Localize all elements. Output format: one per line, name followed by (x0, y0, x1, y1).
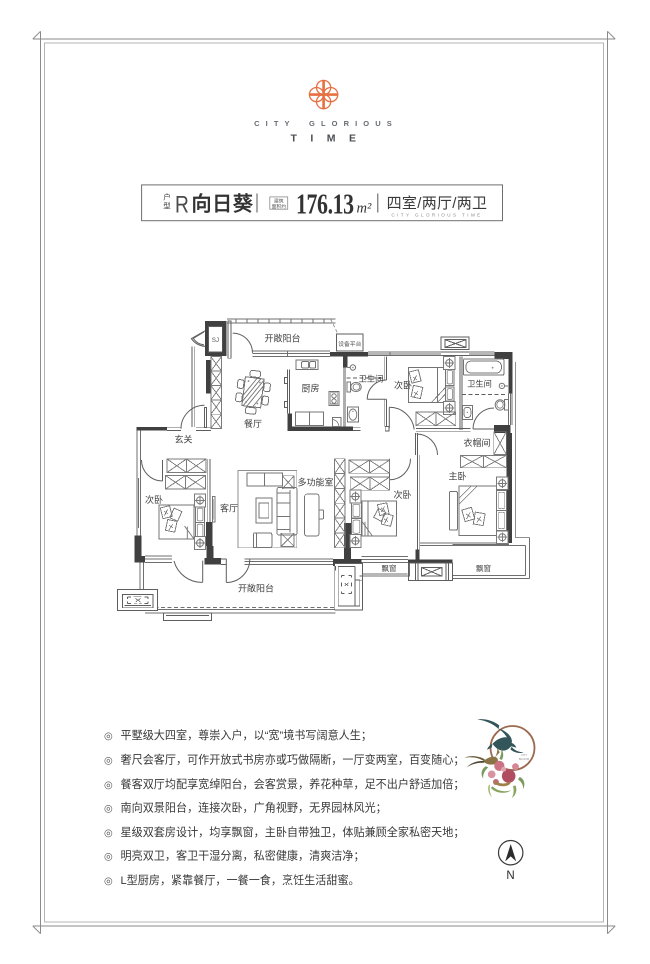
svg-text:◎: ◎ (104, 852, 113, 863)
svg-text:厨房: 厨房 (301, 383, 319, 394)
svg-text:TIME: TIME (290, 133, 369, 145)
svg-text:主卧: 主卧 (448, 471, 466, 482)
svg-text:CITY GLORIOUS: CITY GLORIOUS (254, 119, 398, 128)
svg-text:◎: ◎ (104, 756, 113, 767)
svg-text:飘窗: 飘窗 (382, 563, 397, 573)
svg-text:面积约: 面积约 (272, 203, 287, 210)
svg-text:飘窗: 飘窗 (476, 563, 491, 573)
svg-text:设备平台: 设备平台 (338, 340, 361, 348)
svg-text:次卧: 次卧 (145, 494, 163, 505)
svg-text:次卧: 次卧 (393, 489, 411, 500)
svg-text:衣帽间: 衣帽间 (463, 437, 490, 448)
svg-text:户: 户 (163, 192, 171, 202)
svg-text:R: R (175, 190, 189, 218)
svg-text:◎: ◎ (104, 780, 113, 791)
svg-text:L型厨房，紧靠餐厅，一餐一食，烹饪生活甜蜜。: L型厨房，紧靠餐厅，一餐一食，烹饪生活甜蜜。 (121, 873, 360, 887)
svg-text:卫生间: 卫生间 (467, 379, 492, 389)
svg-text:玄关: 玄关 (174, 434, 192, 445)
svg-text:◎: ◎ (104, 828, 113, 839)
svg-text:卫生间: 卫生间 (359, 374, 384, 384)
svg-text:建筑: 建筑 (274, 197, 284, 204)
svg-text:CITY GLORIOUS TIME: CITY GLORIOUS TIME (391, 213, 482, 218)
svg-text:BLOOM: BLOOM (519, 757, 530, 761)
svg-text:餐厅: 餐厅 (244, 418, 262, 429)
svg-text:客厅: 客厅 (220, 503, 238, 514)
svg-text:◎: ◎ (104, 731, 113, 742)
svg-text:南向双景阳台，连接次卧，广角视野，无界园林风光；: 南向双景阳台，连接次卧，广角视野，无界园林风光； (121, 801, 387, 815)
svg-text:餐客双厅均配享宽绰阳台，会客赏景，养花种草，足不出户舒适加倍: 餐客双厅均配享宽绰阳台，会客赏景，养花种草，足不出户舒适加倍； (121, 777, 465, 791)
svg-text:◎: ◎ (104, 804, 113, 815)
svg-text:多功能室: 多功能室 (297, 477, 333, 488)
svg-text:176.13: 176.13 (296, 190, 354, 220)
svg-text:平墅级大四室，尊崇入户，以“宽”境书写阔意人生；: 平墅级大四室，尊崇入户，以“宽”境书写阔意人生； (121, 728, 372, 742)
svg-text:星级双套房设计，均享飘窗，主卧自带独卫，体贴兼顾全家私密天地: 星级双套房设计，均享飘窗，主卧自带独卫，体贴兼顾全家私密天地； (121, 825, 465, 839)
svg-text:SJ: SJ (212, 337, 219, 344)
svg-text:型: 型 (163, 202, 171, 211)
svg-text:四室/两厅/两卫: 四室/两厅/两卫 (387, 195, 488, 212)
svg-text:m²: m² (357, 201, 372, 217)
svg-text:次卧: 次卧 (394, 380, 412, 391)
svg-text:向日葵: 向日葵 (191, 192, 253, 216)
svg-text:奢尺会客厅，可作开放式书房亦或巧做隔断，一厅变两室，百变随心: 奢尺会客厅，可作开放式书房亦或巧做隔断，一厅变两室，百变随心； (121, 753, 465, 767)
svg-text:◎: ◎ (104, 876, 113, 887)
svg-text:N: N (506, 870, 514, 882)
svg-text:开敞阳台: 开敞阳台 (264, 333, 300, 344)
svg-text:明亮双卫，客卫干湿分离，私密健康，清爽洁净；: 明亮双卫，客卫干湿分离，私密健康，清爽洁净； (121, 849, 365, 863)
svg-text:开敞阳台: 开敞阳台 (238, 583, 274, 594)
